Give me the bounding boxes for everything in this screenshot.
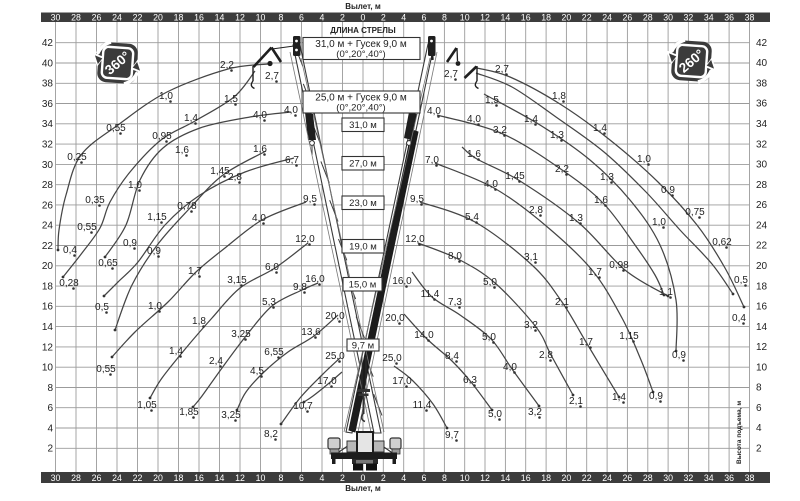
svg-text:34: 34 [42, 119, 54, 130]
svg-text:28: 28 [71, 473, 81, 483]
svg-text:12: 12 [235, 473, 245, 483]
svg-text:12,0: 12,0 [405, 234, 425, 245]
svg-text:22: 22 [133, 473, 143, 483]
svg-text:1,0: 1,0 [159, 91, 173, 102]
svg-text:8,0: 8,0 [448, 251, 462, 262]
svg-text:0,9: 0,9 [661, 185, 675, 196]
svg-text:0,28: 0,28 [59, 278, 79, 289]
svg-text:Высота подъема, м: Высота подъема, м [736, 401, 743, 464]
svg-text:9,5: 9,5 [303, 194, 317, 205]
svg-text:1,05: 1,05 [137, 400, 157, 411]
svg-text:38: 38 [756, 79, 768, 90]
svg-text:26: 26 [92, 473, 102, 483]
svg-text:Вылет, м: Вылет, м [345, 484, 381, 493]
svg-text:4,0: 4,0 [253, 110, 267, 121]
svg-text:4: 4 [320, 13, 325, 23]
svg-text:0,98: 0,98 [609, 260, 629, 271]
svg-text:0,55: 0,55 [77, 222, 97, 233]
svg-text:9,7 м: 9,7 м [352, 340, 374, 351]
svg-text:34: 34 [704, 13, 714, 23]
svg-text:42: 42 [42, 38, 54, 49]
svg-text:0,25: 0,25 [67, 152, 87, 163]
svg-text:34: 34 [756, 119, 768, 130]
svg-text:10: 10 [256, 473, 266, 483]
svg-text:2,4: 2,4 [209, 356, 223, 367]
svg-text:2,1: 2,1 [555, 297, 569, 308]
svg-text:14: 14 [756, 322, 768, 333]
svg-text:1,6: 1,6 [253, 144, 267, 155]
svg-text:22: 22 [42, 241, 54, 252]
svg-text:23,0 м: 23,0 м [349, 198, 377, 209]
svg-text:0,55: 0,55 [96, 364, 116, 375]
svg-text:36: 36 [42, 99, 54, 110]
svg-text:(0°,20°,40°): (0°,20°,40°) [336, 103, 385, 114]
svg-text:8: 8 [442, 13, 447, 23]
svg-text:2,7: 2,7 [265, 71, 279, 82]
svg-text:6,7: 6,7 [285, 155, 299, 166]
svg-text:1,15: 1,15 [619, 331, 639, 342]
svg-text:31,0 м: 31,0 м [349, 120, 377, 131]
svg-text:30: 30 [42, 160, 54, 171]
svg-text:2,1: 2,1 [569, 396, 583, 407]
svg-text:24: 24 [602, 473, 612, 483]
svg-text:6: 6 [756, 403, 762, 414]
svg-text:26: 26 [623, 473, 633, 483]
svg-text:ДЛИНА СТРЕЛЫ: ДЛИНА СТРЕЛЫ [330, 26, 396, 35]
svg-text:10: 10 [256, 13, 266, 23]
svg-text:0,9: 0,9 [672, 350, 686, 361]
svg-text:Вылет, м: Вылет, м [345, 2, 381, 11]
svg-text:3,2: 3,2 [528, 407, 542, 418]
svg-text:1,7: 1,7 [579, 337, 593, 348]
svg-text:12: 12 [756, 342, 768, 353]
svg-text:4: 4 [756, 423, 762, 434]
svg-text:0,75: 0,75 [685, 207, 705, 218]
svg-text:24: 24 [112, 473, 122, 483]
svg-text:7,3: 7,3 [448, 297, 462, 308]
svg-text:18: 18 [174, 473, 184, 483]
svg-text:4,0: 4,0 [467, 114, 481, 125]
svg-text:5,0: 5,0 [488, 409, 502, 420]
svg-text:6: 6 [299, 13, 304, 23]
svg-text:25,0: 25,0 [325, 351, 345, 362]
svg-text:11,4: 11,4 [421, 289, 440, 300]
svg-text:4,0: 4,0 [252, 213, 266, 224]
svg-text:3,1: 3,1 [524, 252, 538, 263]
svg-text:10: 10 [756, 362, 768, 373]
svg-text:34: 34 [704, 473, 714, 483]
svg-text:16: 16 [521, 13, 531, 23]
svg-text:3,2: 3,2 [524, 320, 538, 331]
svg-text:2: 2 [756, 444, 762, 455]
svg-text:26: 26 [756, 200, 768, 211]
svg-text:36: 36 [724, 13, 734, 23]
svg-text:1,5: 1,5 [485, 95, 499, 106]
svg-text:1,7: 1,7 [588, 267, 602, 278]
svg-text:4,0: 4,0 [284, 105, 298, 116]
svg-text:2: 2 [381, 473, 386, 483]
svg-text:4,0: 4,0 [503, 362, 517, 373]
svg-text:0,78: 0,78 [177, 201, 197, 212]
svg-text:1,6: 1,6 [594, 195, 608, 206]
svg-text:16,0: 16,0 [305, 274, 325, 285]
svg-text:2,7: 2,7 [495, 64, 509, 75]
svg-text:10: 10 [42, 363, 54, 374]
svg-text:24: 24 [756, 220, 768, 231]
svg-text:28: 28 [643, 473, 653, 483]
svg-text:22: 22 [582, 13, 592, 23]
svg-text:20: 20 [153, 473, 163, 483]
svg-text:28: 28 [756, 180, 768, 191]
svg-text:1,0: 1,0 [637, 154, 651, 165]
svg-text:1,6: 1,6 [175, 145, 189, 156]
svg-text:16,0: 16,0 [392, 276, 412, 287]
svg-text:0: 0 [361, 473, 366, 483]
svg-text:2,7: 2,7 [444, 69, 458, 80]
svg-text:0,62: 0,62 [712, 237, 732, 248]
svg-text:8,4: 8,4 [445, 351, 459, 362]
svg-text:0,35: 0,35 [85, 195, 105, 206]
svg-text:1,4: 1,4 [524, 114, 538, 125]
svg-text:0,5: 0,5 [734, 275, 748, 286]
svg-text:22: 22 [582, 473, 592, 483]
svg-text:40: 40 [756, 58, 768, 69]
svg-text:(0°,20°,40°): (0°,20°,40°) [336, 49, 385, 60]
svg-text:16: 16 [521, 473, 531, 483]
svg-text:0,65: 0,65 [98, 258, 118, 269]
svg-text:38: 38 [42, 79, 54, 90]
svg-text:0,9: 0,9 [649, 391, 663, 402]
svg-text:11,4: 11,4 [413, 400, 432, 411]
svg-text:20: 20 [562, 473, 572, 483]
svg-text:12: 12 [480, 13, 490, 23]
svg-text:14,0: 14,0 [414, 330, 434, 341]
svg-text:27,0 м: 27,0 м [349, 159, 377, 170]
svg-text:1,4: 1,4 [593, 123, 607, 134]
svg-text:1,7: 1,7 [188, 266, 202, 277]
svg-text:1,3: 1,3 [569, 213, 583, 224]
svg-text:2,2: 2,2 [220, 60, 234, 71]
svg-text:8,2: 8,2 [264, 429, 278, 440]
svg-text:3,15: 3,15 [227, 275, 247, 286]
svg-text:28: 28 [643, 13, 653, 23]
svg-text:0,9: 0,9 [123, 238, 137, 249]
svg-text:14: 14 [215, 473, 225, 483]
svg-text:1,8: 1,8 [192, 316, 206, 327]
svg-text:13,6: 13,6 [301, 327, 321, 338]
svg-text:18: 18 [174, 13, 184, 23]
svg-text:36: 36 [724, 473, 734, 483]
svg-text:30: 30 [51, 473, 61, 483]
svg-text:5,4: 5,4 [465, 212, 479, 223]
svg-text:4,5: 4,5 [250, 366, 264, 377]
svg-text:20: 20 [756, 261, 768, 272]
svg-text:0,4: 0,4 [63, 245, 77, 256]
svg-text:20: 20 [562, 13, 572, 23]
svg-text:1,0: 1,0 [128, 180, 142, 191]
svg-text:12,0: 12,0 [295, 234, 315, 245]
svg-text:18: 18 [756, 281, 768, 292]
svg-text:9,7: 9,7 [445, 430, 459, 441]
svg-text:4: 4 [401, 13, 406, 23]
svg-text:1,1: 1,1 [659, 287, 673, 298]
svg-text:1,0: 1,0 [148, 301, 162, 312]
svg-text:0,5: 0,5 [95, 302, 109, 313]
svg-text:2,8: 2,8 [228, 172, 242, 183]
svg-text:26: 26 [623, 13, 633, 23]
svg-text:10: 10 [460, 473, 470, 483]
svg-text:28: 28 [42, 180, 54, 191]
svg-text:2,8: 2,8 [529, 205, 543, 216]
svg-text:32: 32 [684, 473, 694, 483]
svg-text:2: 2 [381, 13, 386, 23]
svg-text:6: 6 [299, 473, 304, 483]
svg-text:24: 24 [602, 13, 612, 23]
svg-text:2: 2 [47, 444, 53, 455]
svg-text:6: 6 [47, 403, 53, 414]
svg-text:30: 30 [663, 473, 673, 483]
svg-text:1,6: 1,6 [467, 149, 481, 160]
svg-text:30: 30 [51, 13, 61, 23]
svg-text:18: 18 [541, 473, 551, 483]
svg-text:38: 38 [745, 473, 755, 483]
svg-text:18: 18 [541, 13, 551, 23]
svg-text:26: 26 [92, 13, 102, 23]
svg-text:2,2: 2,2 [555, 164, 569, 175]
svg-text:0,4: 0,4 [732, 313, 746, 324]
svg-text:3,25: 3,25 [221, 410, 241, 421]
svg-text:32: 32 [756, 139, 768, 150]
svg-text:1,4: 1,4 [184, 113, 198, 124]
svg-text:2: 2 [340, 473, 345, 483]
svg-text:20: 20 [153, 13, 163, 23]
svg-text:9,5: 9,5 [410, 194, 424, 205]
svg-text:24: 24 [42, 221, 54, 232]
svg-text:10,7: 10,7 [293, 401, 313, 412]
svg-text:6,55: 6,55 [264, 347, 284, 358]
svg-text:32: 32 [684, 13, 694, 23]
svg-text:8: 8 [47, 383, 53, 394]
svg-text:8: 8 [756, 383, 762, 394]
svg-text:12: 12 [235, 13, 245, 23]
svg-text:7,0: 7,0 [425, 155, 439, 166]
svg-text:16: 16 [194, 473, 204, 483]
svg-text:0,95: 0,95 [152, 131, 172, 142]
svg-text:42: 42 [756, 38, 768, 49]
svg-text:26: 26 [42, 200, 54, 211]
svg-text:15,0 м: 15,0 м [349, 280, 377, 291]
svg-text:8: 8 [279, 13, 284, 23]
svg-text:1,85: 1,85 [179, 407, 199, 418]
svg-text:2,8: 2,8 [539, 350, 553, 361]
svg-text:1,15: 1,15 [147, 212, 167, 223]
svg-text:6,3: 6,3 [463, 375, 477, 386]
svg-text:1,5: 1,5 [224, 94, 238, 105]
svg-text:1,3: 1,3 [600, 172, 614, 183]
svg-text:2: 2 [340, 13, 345, 23]
svg-text:1,8: 1,8 [552, 91, 566, 102]
svg-text:30: 30 [663, 13, 673, 23]
svg-text:16: 16 [194, 13, 204, 23]
svg-text:1,45: 1,45 [505, 171, 525, 182]
svg-text:14: 14 [501, 473, 511, 483]
svg-text:0: 0 [361, 13, 366, 23]
svg-text:22: 22 [133, 13, 143, 23]
svg-text:3,25: 3,25 [231, 329, 251, 340]
svg-text:30: 30 [756, 160, 768, 171]
svg-text:6,0: 6,0 [265, 262, 279, 273]
svg-text:3,2: 3,2 [493, 125, 507, 136]
svg-text:20,0: 20,0 [385, 313, 405, 324]
svg-text:1,0: 1,0 [652, 217, 666, 228]
svg-text:0,9: 0,9 [147, 246, 161, 257]
svg-text:8: 8 [279, 473, 284, 483]
svg-text:36: 36 [756, 99, 768, 110]
svg-text:4: 4 [401, 473, 406, 483]
svg-text:0,55: 0,55 [106, 123, 126, 134]
svg-text:28: 28 [71, 13, 81, 23]
svg-text:16: 16 [756, 302, 768, 313]
svg-text:6: 6 [422, 473, 427, 483]
svg-text:14: 14 [501, 13, 511, 23]
svg-text:17,0: 17,0 [317, 376, 337, 387]
svg-text:24: 24 [112, 13, 122, 23]
svg-text:9,8: 9,8 [293, 282, 307, 293]
svg-text:40: 40 [42, 58, 54, 69]
svg-text:19,0 м: 19,0 м [349, 242, 377, 253]
svg-text:5,3: 5,3 [262, 297, 276, 308]
svg-text:1,3: 1,3 [550, 130, 564, 141]
svg-text:1,4: 1,4 [169, 346, 183, 357]
svg-text:18: 18 [42, 282, 54, 293]
svg-text:8: 8 [442, 473, 447, 483]
svg-text:4: 4 [47, 423, 53, 434]
svg-text:22: 22 [756, 241, 768, 252]
svg-text:20: 20 [42, 261, 54, 272]
svg-text:38: 38 [745, 13, 755, 23]
svg-text:16: 16 [42, 302, 54, 313]
svg-text:14: 14 [42, 322, 54, 333]
svg-text:6: 6 [422, 13, 427, 23]
svg-text:10: 10 [460, 13, 470, 23]
svg-text:4,0: 4,0 [427, 106, 441, 117]
svg-text:14: 14 [215, 13, 225, 23]
svg-text:25,0: 25,0 [382, 353, 402, 364]
svg-text:12: 12 [480, 473, 490, 483]
svg-text:12: 12 [42, 342, 54, 353]
svg-text:17,0: 17,0 [392, 376, 412, 387]
svg-text:4: 4 [320, 473, 325, 483]
svg-text:5,0: 5,0 [482, 332, 496, 343]
svg-text:20,0: 20,0 [325, 311, 345, 322]
svg-text:4,0: 4,0 [484, 179, 498, 190]
svg-text:5,0: 5,0 [483, 277, 497, 288]
svg-text:1,4: 1,4 [612, 392, 626, 403]
svg-text:32: 32 [42, 140, 54, 151]
